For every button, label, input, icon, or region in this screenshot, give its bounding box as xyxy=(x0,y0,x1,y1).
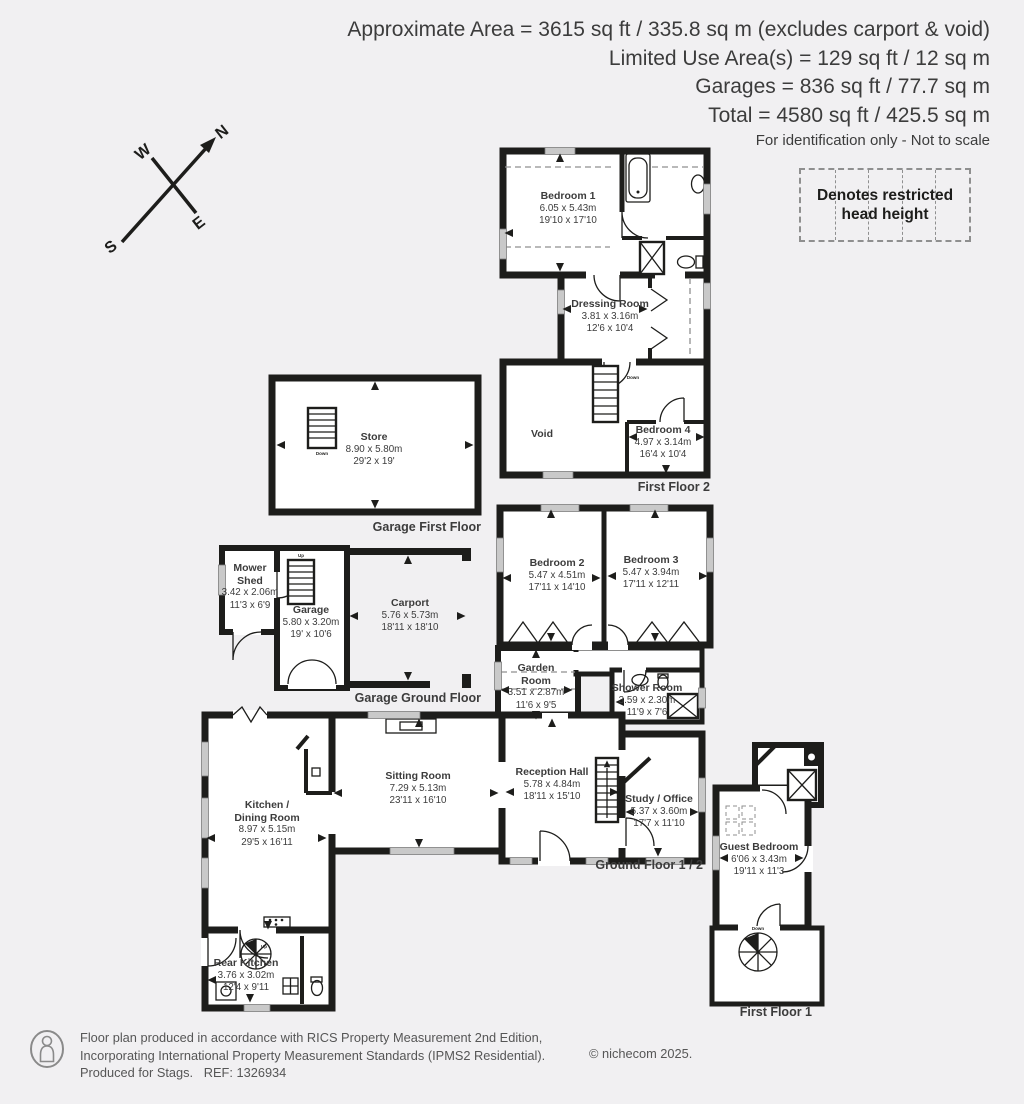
stair-down-label: Down xyxy=(752,926,764,931)
nichecom-person-icon xyxy=(28,1030,68,1070)
garages-area-line: Garages = 836 sq ft / 77.7 sq m xyxy=(347,73,990,102)
stair-down-label: Down xyxy=(316,451,328,456)
compass-n-label: N xyxy=(212,122,232,143)
room-label-mower-shed: Mower Shed 3.42 x 2.06m 11'3 x 6'9 xyxy=(222,562,279,612)
shower-icon xyxy=(640,242,664,274)
room-label-reception-hall: Reception Hall 5.78 x 4.84m 18'11 x 15'1… xyxy=(516,766,589,804)
staircase-icon: Down xyxy=(308,408,336,456)
room-label-bedroom-3: Bedroom 3 5.47 x 3.94m 17'11 x 12'11 xyxy=(623,554,680,592)
stair-up-label: Up xyxy=(298,553,304,558)
floorplan-svg: N W E S xyxy=(0,0,1024,1104)
floor-label-first-floor-1: First Floor 1 xyxy=(740,1005,812,1019)
floor-label-ground-floor-1-2: Ground Floor 1 / 2 xyxy=(595,858,703,872)
room-label-dressing-room: Dressing Room 3.81 x 3.16m 12'6 x 10'4 xyxy=(571,298,649,336)
room-label-rear-kitchen: Rear Kitchen 3.76 x 3.02m 12'4 x 9'11 xyxy=(214,957,279,995)
sink-icon xyxy=(804,748,819,766)
total-area-line: Total = 4580 sq ft / 425.5 sq m xyxy=(347,102,990,131)
room-label-shower-room: Shower Room 3.59 x 2.30m 11'9 x 7'6 xyxy=(612,682,683,720)
footer-line-1: Floor plan produced in accordance with R… xyxy=(80,1029,545,1047)
room-label-store: Store 8.90 x 5.80m 29'2 x 19' xyxy=(346,431,403,469)
compass-e-label: E xyxy=(190,213,209,233)
floorplan-page: N W E S xyxy=(0,0,1024,1104)
room-label-garage: Garage 5.80 x 3.20m 19' x 10'6 xyxy=(283,604,340,642)
limited-use-area-line: Limited Use Area(s) = 129 sq ft / 12 sq … xyxy=(347,45,990,74)
room-label-bedroom-1: Bedroom 1 6.05 x 5.43m 19'10 x 17'10 xyxy=(539,190,597,228)
floor-label-garage-ground-floor: Garage Ground Floor xyxy=(355,691,481,705)
footer-line-2: Incorporating International Property Mea… xyxy=(80,1047,545,1065)
room-label-guest-bedroom: Guest Bedroom 6'06 x 3.43m 19'11 x 11'3 xyxy=(720,841,799,879)
room-label-bedroom-2: Bedroom 2 5.47 x 4.51m 17'11 x 14'10 xyxy=(529,557,586,595)
footer-disclaimer: Floor plan produced in accordance with R… xyxy=(80,1029,545,1082)
stair-down-label: Down xyxy=(627,375,639,380)
floor-label-first-floor-2: First Floor 2 xyxy=(638,480,710,494)
footer-line-3: Produced for Stags. REF: 1326934 xyxy=(80,1064,545,1082)
restricted-head-height-legend: Denotes restricted head height xyxy=(799,168,971,242)
room-label-sitting-room: Sitting Room 7.29 x 5.13m 23'11 x 16'10 xyxy=(385,770,450,808)
approximate-area-line: Approximate Area = 3615 sq ft / 335.8 sq… xyxy=(347,16,990,45)
shower-icon xyxy=(788,770,816,800)
legend-text: Denotes restricted head height xyxy=(801,170,969,240)
room-label-bedroom-4: Bedroom 4 4.97 x 3.14m 16'4 x 10'4 xyxy=(635,424,692,462)
room-label-garden-room: Garden Room 3.51 x 2.87m 11'6 x 9'5 xyxy=(508,662,565,712)
room-label-kitchen-dining-room: Kitchen / Dining Room 8.97 x 5.15m 29'5 … xyxy=(230,799,304,849)
staircase-icon xyxy=(596,758,618,822)
compass-s-label: S xyxy=(102,237,121,257)
stair-up-label: Up xyxy=(261,944,267,949)
identification-disclaimer: For identification only - Not to scale xyxy=(756,132,990,149)
area-summary: Approximate Area = 3615 sq ft / 335.8 sq… xyxy=(347,16,990,130)
room-label-study-office: Study / Office 5.37 x 3.60m 17'7 x 11'10 xyxy=(625,793,693,831)
floor-label-garage-first-floor: Garage First Floor xyxy=(373,520,481,534)
room-label-carport: Carport 5.76 x 5.73m 18'11 x 18'10 xyxy=(382,597,439,635)
staircase-icon: Up xyxy=(288,553,314,604)
copyright-notice: © nichecom 2025. xyxy=(589,1046,692,1061)
room-label-void: Void xyxy=(531,428,553,441)
compass-rose: N W E S xyxy=(102,122,232,257)
